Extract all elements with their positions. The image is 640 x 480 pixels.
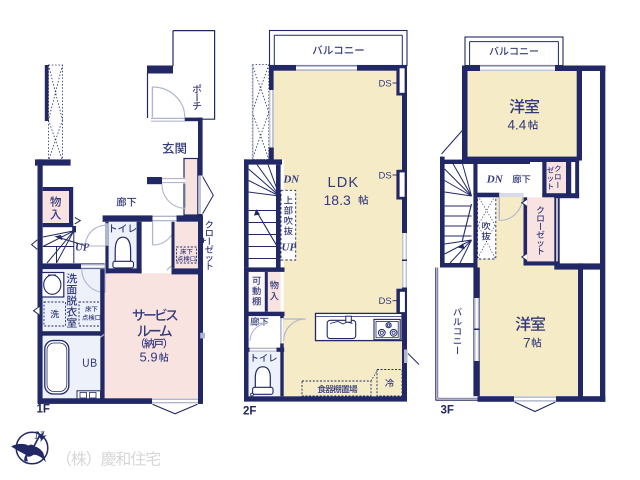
svg-text:7: 7 xyxy=(523,335,531,350)
svg-text:DN: DN xyxy=(283,174,301,186)
svg-text:UP: UP xyxy=(75,241,90,253)
svg-text:3F: 3F xyxy=(441,405,454,417)
svg-text:UP: UP xyxy=(282,242,297,254)
svg-text:DS: DS xyxy=(379,79,392,90)
svg-text:5.9: 5.9 xyxy=(140,350,158,365)
svg-text:18.3: 18.3 xyxy=(324,192,351,208)
svg-text:DN: DN xyxy=(486,173,504,185)
svg-text:4.4: 4.4 xyxy=(508,118,527,133)
svg-text:DS: DS xyxy=(379,171,392,182)
svg-text:2F: 2F xyxy=(243,406,256,418)
svg-text:N: N xyxy=(34,428,45,442)
svg-text:LDK: LDK xyxy=(328,175,360,191)
svg-text:1F: 1F xyxy=(37,404,50,416)
svg-text:DS: DS xyxy=(379,296,392,307)
